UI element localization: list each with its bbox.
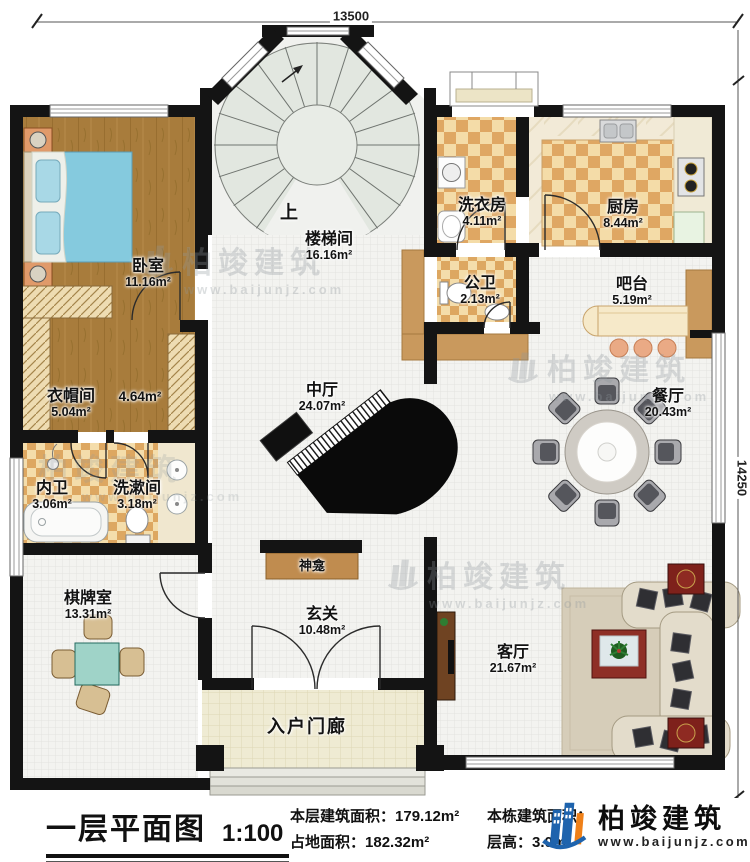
room-label-bar: 吧台5.19m² bbox=[612, 277, 652, 307]
room-label-cloakroom: 衣帽间5.04m² bbox=[47, 389, 95, 419]
fridge-icon bbox=[674, 212, 704, 248]
title-block: 一层平面图 1:100 本层建筑面积：179.12m² 占地面积：182.32m… bbox=[0, 798, 750, 862]
bed-headboard bbox=[24, 152, 32, 262]
room-label-entry-porch: 入户门廊 bbox=[267, 718, 347, 737]
window bbox=[50, 105, 168, 117]
room-label-dining: 餐厅20.43m² bbox=[645, 389, 692, 419]
stair-up-label: 上 bbox=[280, 204, 300, 223]
back-bar-counter bbox=[686, 270, 712, 358]
room-label-shrine: 神龛 bbox=[299, 559, 325, 573]
room-label-corridor-area: 4.64m² bbox=[119, 390, 162, 404]
window bbox=[712, 333, 725, 523]
room-label-foyer: 玄关10.48m² bbox=[299, 607, 346, 637]
window bbox=[10, 458, 23, 576]
wardrobe bbox=[22, 318, 50, 432]
room-label-center-hall: 中厅24.07m² bbox=[299, 383, 346, 413]
wardrobe bbox=[22, 286, 112, 318]
pillow bbox=[36, 212, 60, 254]
porch-steps bbox=[210, 768, 425, 795]
dimension-top: 13500 bbox=[330, 9, 372, 24]
game-table bbox=[75, 643, 119, 685]
shower-head bbox=[48, 459, 59, 470]
dimension-right: 14250 bbox=[735, 457, 750, 499]
bar-stool bbox=[658, 339, 676, 357]
area-stats-left: 本层建筑面积：179.12m² 占地面积：182.32m² bbox=[290, 804, 459, 857]
sink-counter bbox=[158, 443, 195, 543]
plan-title-block: 一层平面图 1:100 bbox=[46, 804, 289, 858]
room-label-private-bath: 内卫3.06m² bbox=[32, 481, 72, 511]
window bbox=[563, 105, 671, 117]
brand-name: 柏竣建筑 bbox=[598, 805, 750, 835]
laundry-bay-window bbox=[450, 72, 538, 117]
wardrobe bbox=[168, 334, 195, 432]
kitchen-rug bbox=[542, 140, 674, 246]
room-label-stairwell: 楼梯间16.16m² bbox=[305, 232, 353, 262]
brand-logo: 柏竣建筑 www.baijunjz.com bbox=[540, 798, 750, 856]
bar-stool bbox=[634, 339, 652, 357]
window bbox=[287, 27, 349, 35]
tv-icon bbox=[448, 640, 454, 674]
pillow bbox=[36, 160, 60, 202]
chair bbox=[120, 648, 144, 676]
floor-plan-page: 柏竣建筑 www.baijunjz.com 柏竣建筑 www.baijunjz.… bbox=[0, 0, 750, 862]
room-label-laundry: 洗衣房4.11m² bbox=[458, 198, 506, 228]
room-label-public-wc: 公卫2.13m² bbox=[460, 276, 500, 306]
brand-logo-icon bbox=[540, 798, 592, 856]
brand-url: www.baijunjz.com bbox=[598, 834, 750, 849]
bar-counter bbox=[598, 306, 688, 336]
shoe-cabinet bbox=[402, 334, 528, 360]
room-label-chess-room: 棋牌室13.31m² bbox=[64, 591, 112, 621]
room-label-kitchen: 厨房8.44m² bbox=[603, 200, 643, 230]
room-label-living-room: 客厅21.67m² bbox=[490, 645, 537, 675]
bedroom-furniture bbox=[24, 128, 132, 286]
bar-stool bbox=[610, 339, 628, 357]
plan-scale: 1:100 bbox=[222, 820, 283, 848]
page-title: 一层平面图 bbox=[46, 804, 206, 848]
room-label-bedroom: 卧室11.16m² bbox=[125, 259, 171, 289]
chair bbox=[52, 650, 76, 678]
room-label-washroom: 洗漱间3.18m² bbox=[113, 481, 161, 511]
window bbox=[466, 757, 674, 768]
floor-plan-drawing bbox=[0, 0, 750, 862]
